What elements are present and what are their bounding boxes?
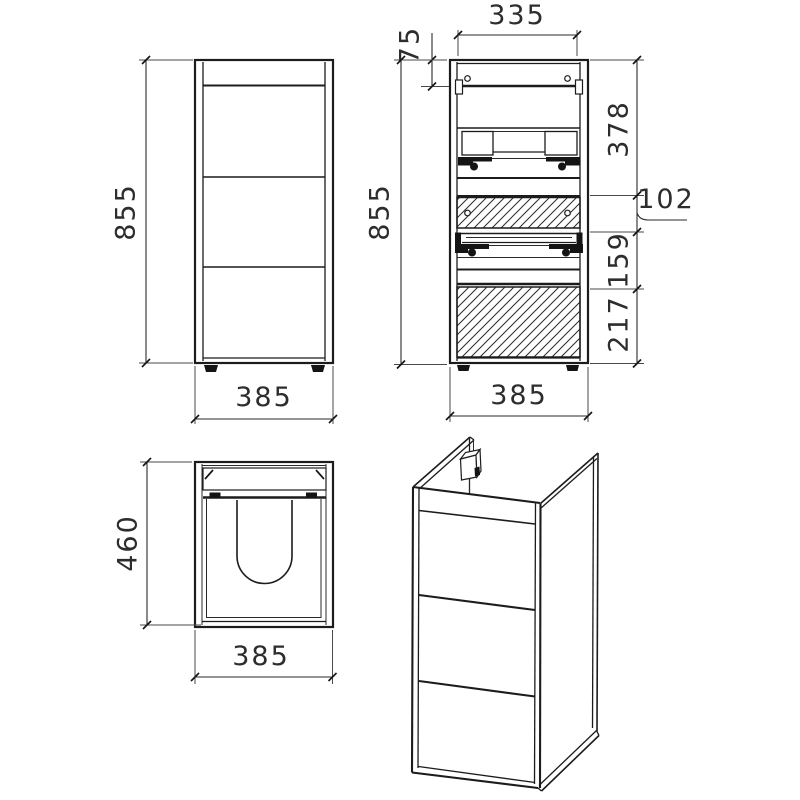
front-view-cabinet-outline xyxy=(195,60,333,372)
front-left-foot xyxy=(204,365,218,372)
screw-hole xyxy=(465,210,471,216)
front-right-foot xyxy=(311,365,325,372)
wall-hanger-bracket xyxy=(461,450,482,494)
screw-hole xyxy=(565,76,571,82)
plan-back-rail xyxy=(203,468,326,490)
section-top-width-dimension: 335 xyxy=(488,0,546,31)
iso-view xyxy=(412,437,599,791)
front-view-dimensions: 855 385 xyxy=(111,56,338,424)
drawer-slide-rails xyxy=(458,157,580,171)
section-segment-mid-dimension: 159 xyxy=(604,231,635,289)
front-width-dimension: 385 xyxy=(235,382,293,413)
section-drawer-front-panel xyxy=(457,198,580,229)
screw-hole xyxy=(565,210,571,216)
iso-front-face xyxy=(412,487,540,788)
section-view: 335 75 855 378 xyxy=(365,0,695,422)
section-left-foot xyxy=(457,365,470,371)
section-width-dimension: 385 xyxy=(490,380,548,411)
section-top-rail xyxy=(456,76,583,94)
section-right-foot xyxy=(566,365,579,371)
iso-right-side-panel xyxy=(538,453,599,791)
front-view: 855 385 xyxy=(111,56,338,424)
section-drawer-2 xyxy=(455,233,583,285)
siphon-cutout xyxy=(237,500,292,584)
drawer-slide-rails xyxy=(455,244,583,257)
plan-depth-dimension: 460 xyxy=(113,514,144,572)
section-segment-top-dimension: 378 xyxy=(604,100,635,158)
plan-dimensions: 460 385 xyxy=(113,458,337,684)
screw-hole xyxy=(465,76,471,82)
plan-view: 460 385 xyxy=(113,458,337,684)
plan-width-dimension: 385 xyxy=(232,641,290,672)
plan-cabinet-outline xyxy=(195,462,333,627)
front-height-dimension: 855 xyxy=(111,183,142,241)
section-bottom-panel xyxy=(457,287,580,357)
section-segment-bottom-dimension: 217 xyxy=(604,295,635,353)
section-drawer-1 xyxy=(457,128,580,196)
section-drawer-front-dimension: 102 xyxy=(637,184,695,215)
technical-drawing-canvas: 855 385 xyxy=(0,0,800,800)
iso-back-panel-and-bracket xyxy=(413,437,481,494)
section-height-dimension: 855 xyxy=(365,183,396,241)
section-top-offset-dimension: 75 xyxy=(395,26,426,64)
